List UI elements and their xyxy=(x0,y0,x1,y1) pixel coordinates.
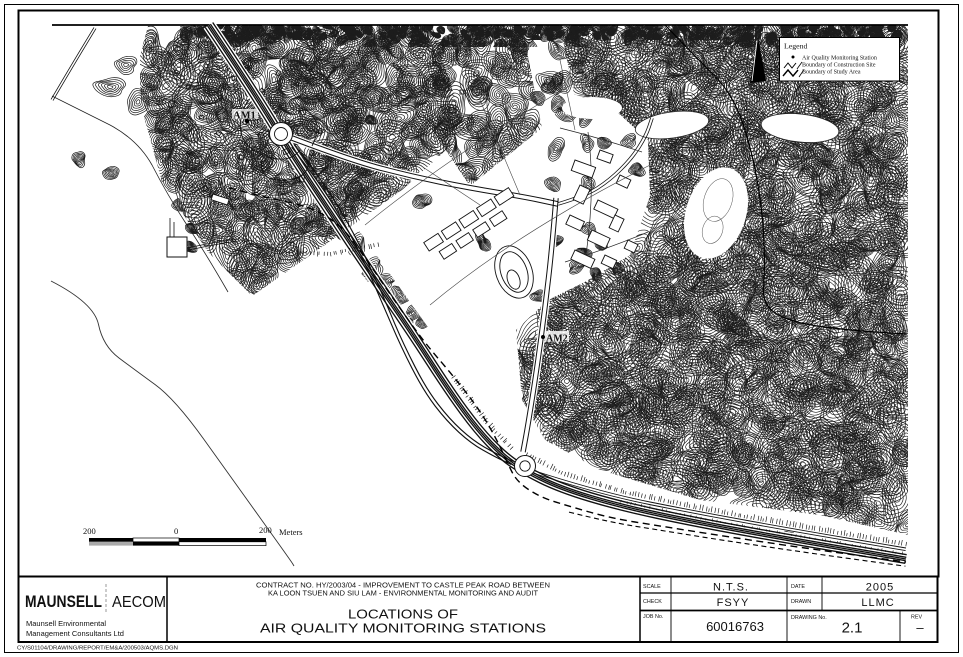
svg-text:2005: 2005 xyxy=(866,582,894,594)
svg-text:60016763: 60016763 xyxy=(706,619,764,634)
svg-text:N.T.S.: N.T.S. xyxy=(713,582,749,594)
svg-text:LLMC: LLMC xyxy=(861,597,894,609)
svg-text:Management Consultants Ltd: Management Consultants Ltd xyxy=(26,629,124,638)
svg-text:DATE: DATE xyxy=(791,584,805,590)
svg-text:AM1: AM1 xyxy=(233,111,256,122)
svg-text:FSYY: FSYY xyxy=(717,597,750,609)
svg-text:CHECK: CHECK xyxy=(643,599,662,605)
svg-text:DRAWN: DRAWN xyxy=(791,599,811,605)
svg-text:DRAWING No.: DRAWING No. xyxy=(791,615,827,621)
svg-text:Boundary of Construction Site: Boundary of Construction Site xyxy=(802,62,876,69)
svg-text:AIR QUALITY MONITORING STATION: AIR QUALITY MONITORING STATIONS xyxy=(260,621,546,636)
svg-text:AM2: AM2 xyxy=(546,334,568,345)
svg-text:Legend: Legend xyxy=(784,42,807,51)
svg-text:Air Quality Monitoring Station: Air Quality Monitoring Station xyxy=(802,56,877,62)
svg-text:JOB No.: JOB No. xyxy=(643,614,663,620)
svg-text:2.1: 2.1 xyxy=(842,620,863,637)
svg-text:KA LOON TSUEN AND SIU LAM - EN: KA LOON TSUEN AND SIU LAM - ENVIRONMENTA… xyxy=(268,589,538,598)
svg-text:AECOM: AECOM xyxy=(112,594,166,611)
svg-text:SCALE: SCALE xyxy=(643,584,661,590)
svg-text:0: 0 xyxy=(174,526,178,536)
svg-text:Meters: Meters xyxy=(279,527,303,537)
svg-text:MAUNSELL: MAUNSELL xyxy=(25,593,102,611)
svg-text:200: 200 xyxy=(83,526,96,536)
svg-text:CY/S01104/DRAWING/REPORT/EM&A/: CY/S01104/DRAWING/REPORT/EM&A/200503/AQM… xyxy=(17,646,178,652)
svg-text:Boundary of Study Area: Boundary of Study Area xyxy=(802,69,861,76)
svg-text:LOCATIONS OF: LOCATIONS OF xyxy=(348,607,458,622)
svg-text:Maunsell Environmental: Maunsell Environmental xyxy=(26,619,106,628)
svg-text:–: – xyxy=(916,620,924,635)
svg-text:200: 200 xyxy=(259,525,272,535)
